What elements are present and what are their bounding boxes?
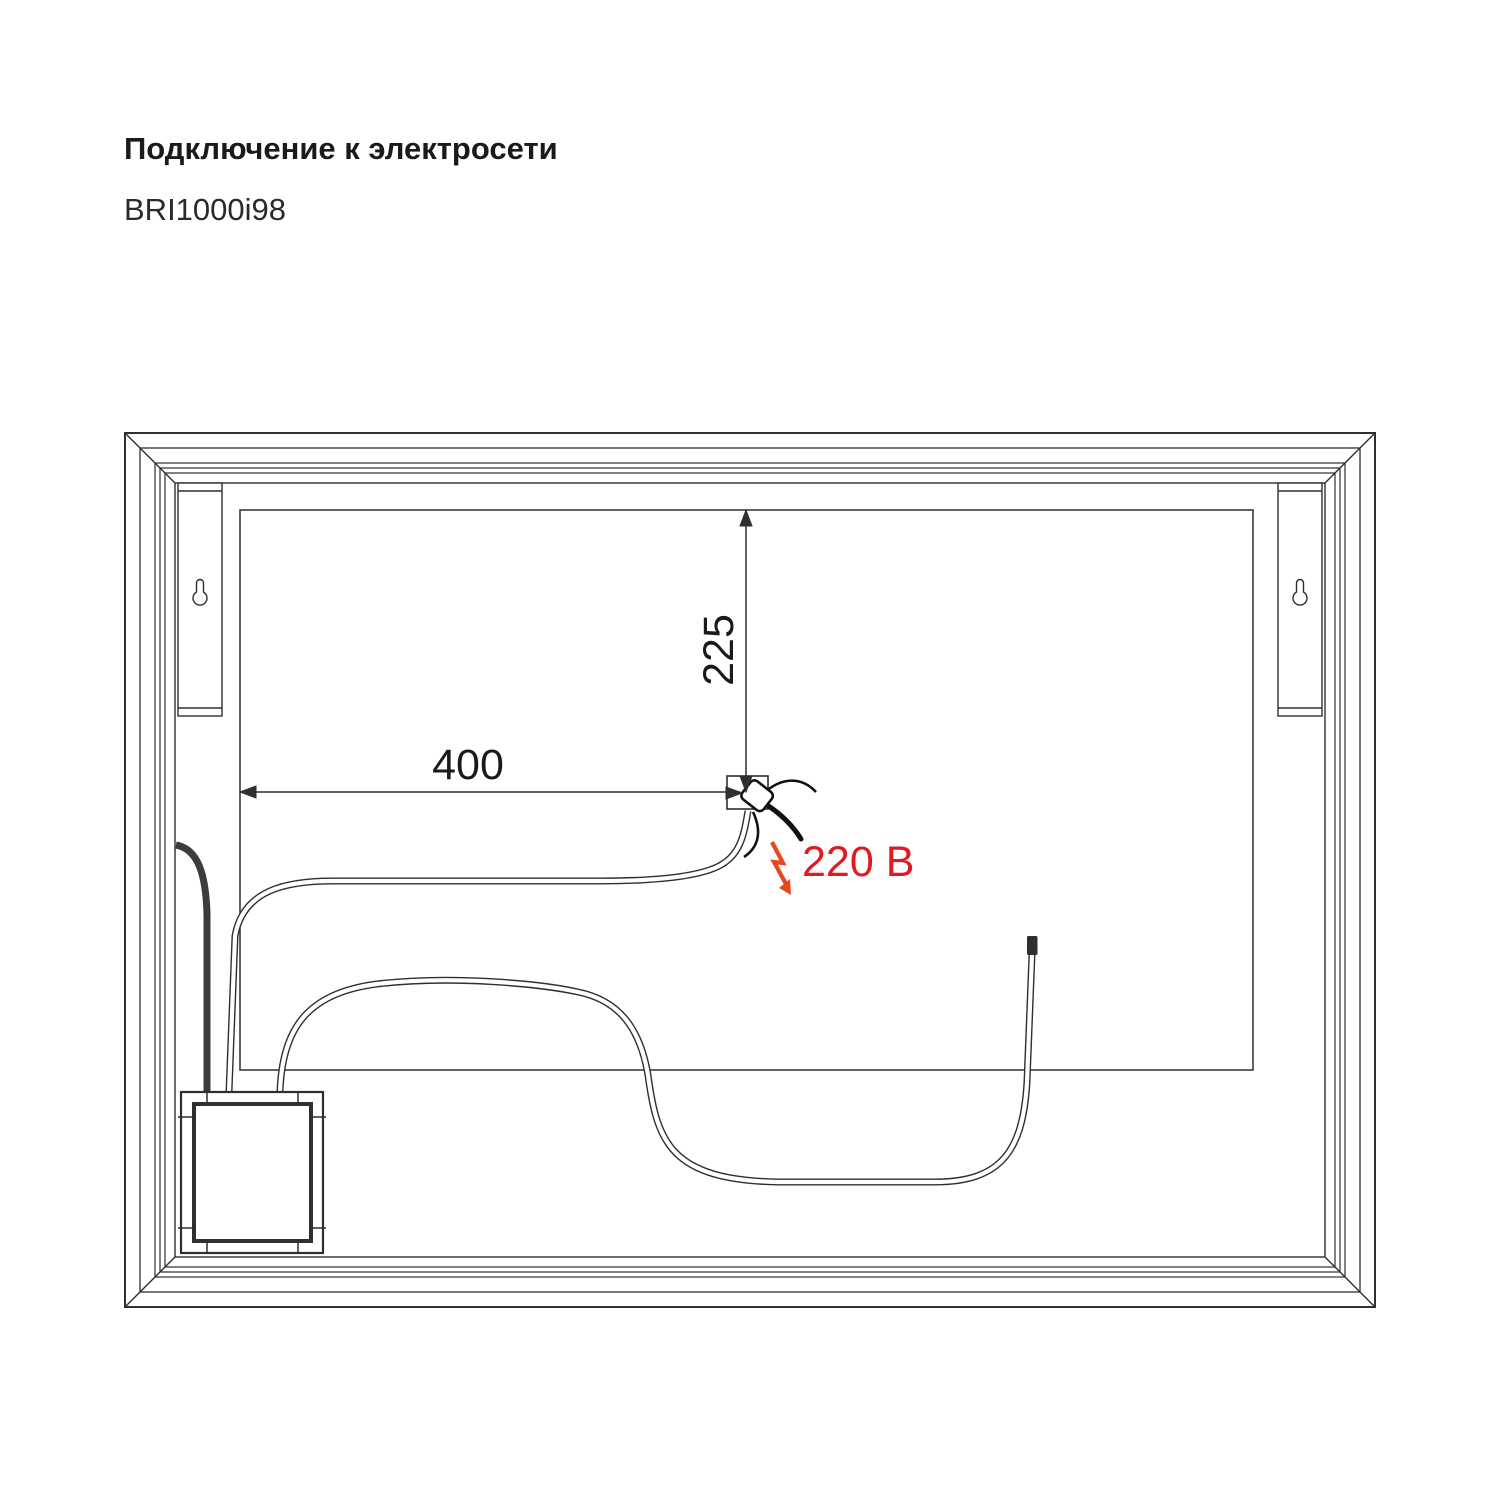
frame-miter-joint [125,433,175,483]
frame-inner-edge [175,483,1325,1257]
mounting-bracket-left [178,483,222,716]
lightning-bolt-icon [772,842,786,884]
mounting-bracket-right [1278,483,1322,716]
frame-profile-line [165,473,1335,1267]
frame-miter-joint [125,1257,175,1307]
arrowhead-up [740,510,752,526]
frame-miter-joint [1325,1257,1375,1307]
voltage-label: 220 В [802,838,914,886]
frame-profile-line [160,468,1340,1272]
power-cable-thick [176,845,207,1092]
cable-driver-to-wire-end [280,954,1032,1182]
voltage-warning: 220 В [772,838,914,895]
dimension-label-horizontal: 400 [432,741,504,789]
wire-end-tip [1027,936,1038,955]
arrowhead-left [240,786,256,798]
installation-diagram-page: Подключение к электросети BRI1000i98 [0,0,1500,1500]
wiring-diagram: 400 225 220 В [0,0,1500,1500]
cable-junction-to-driver [229,811,748,1092]
frame-miter-joint [1325,433,1375,483]
led-driver-box [178,1092,326,1253]
frame-profile-line [155,463,1345,1277]
dimension-label-vertical: 225 [695,614,743,686]
